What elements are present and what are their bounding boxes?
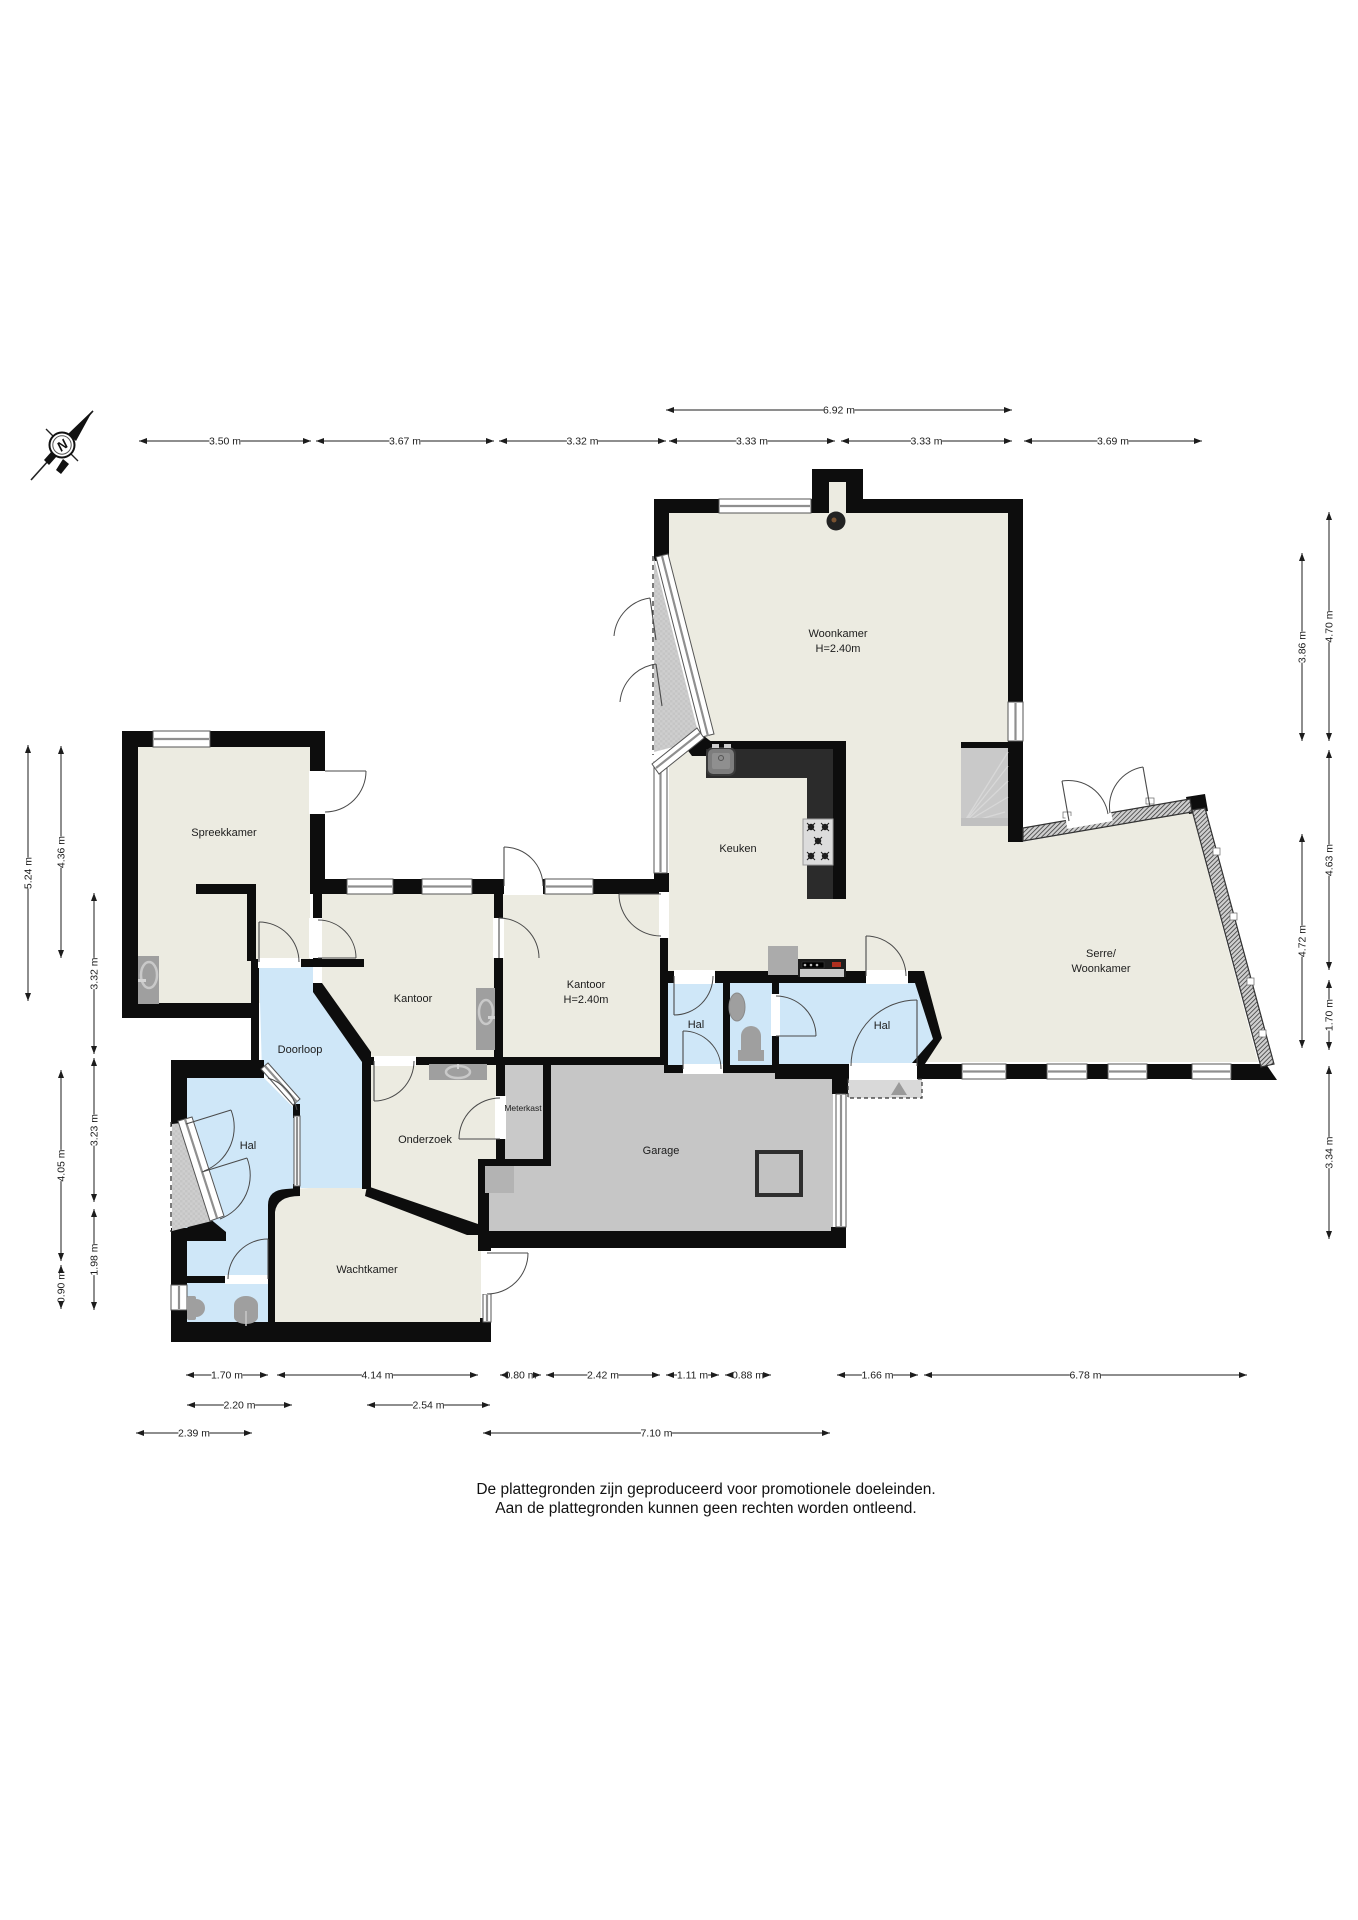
svg-text:4.14 m: 4.14 m bbox=[361, 1370, 393, 1382]
svg-text:Doorloop: Doorloop bbox=[278, 1044, 323, 1056]
svg-text:Keuken: Keuken bbox=[719, 843, 756, 855]
svg-text:4.63 m: 4.63 m bbox=[1324, 844, 1336, 876]
svg-text:3.23 m: 3.23 m bbox=[89, 1114, 101, 1146]
svg-text:0.80 m: 0.80 m bbox=[504, 1370, 536, 1382]
svg-text:7.10 m: 7.10 m bbox=[640, 1428, 672, 1440]
svg-text:Hal: Hal bbox=[874, 1020, 891, 1032]
svg-text:Woonkamer: Woonkamer bbox=[1071, 963, 1130, 975]
svg-text:5.24 m: 5.24 m bbox=[23, 857, 35, 889]
svg-text:3.86 m: 3.86 m bbox=[1297, 631, 1309, 663]
svg-text:H=2.40m: H=2.40m bbox=[816, 643, 861, 655]
svg-text:Hal: Hal bbox=[688, 1019, 705, 1031]
svg-text:Serre/: Serre/ bbox=[1086, 948, 1117, 960]
svg-text:4.72 m: 4.72 m bbox=[1297, 925, 1309, 957]
svg-text:6.92 m: 6.92 m bbox=[823, 405, 855, 417]
svg-text:2.20 m: 2.20 m bbox=[223, 1400, 255, 1412]
svg-text:1.70 m: 1.70 m bbox=[1324, 999, 1336, 1031]
svg-text:2.42 m: 2.42 m bbox=[587, 1370, 619, 1382]
svg-text:De plattegronden zijn geproduc: De plattegronden zijn geproduceerd voor … bbox=[476, 1481, 935, 1498]
svg-text:1.98 m: 1.98 m bbox=[89, 1243, 101, 1275]
svg-text:1.11 m: 1.11 m bbox=[677, 1370, 709, 1382]
svg-text:3.67 m: 3.67 m bbox=[389, 436, 421, 448]
svg-text:3.32 m: 3.32 m bbox=[89, 957, 101, 989]
svg-text:Wachtkamer: Wachtkamer bbox=[336, 1264, 398, 1276]
svg-text:Onderzoek: Onderzoek bbox=[398, 1134, 452, 1146]
svg-text:Kantoor: Kantoor bbox=[394, 993, 433, 1005]
svg-text:3.34 m: 3.34 m bbox=[1324, 1136, 1336, 1168]
svg-text:3.33 m: 3.33 m bbox=[910, 436, 942, 448]
svg-text:6.78 m: 6.78 m bbox=[1069, 1370, 1101, 1382]
svg-text:H=2.40m: H=2.40m bbox=[564, 994, 609, 1006]
svg-text:Meterkast: Meterkast bbox=[504, 1103, 542, 1113]
svg-text:4.05 m: 4.05 m bbox=[56, 1149, 68, 1181]
svg-text:Garage: Garage bbox=[643, 1145, 680, 1157]
svg-text:Kantoor: Kantoor bbox=[567, 979, 606, 991]
svg-text:0.90 m: 0.90 m bbox=[56, 1271, 68, 1303]
svg-text:3.32 m: 3.32 m bbox=[566, 436, 598, 448]
svg-text:3.50 m: 3.50 m bbox=[209, 436, 241, 448]
svg-text:Spreekkamer: Spreekkamer bbox=[191, 827, 257, 839]
svg-text:3.69 m: 3.69 m bbox=[1097, 436, 1129, 448]
svg-text:4.70 m: 4.70 m bbox=[1324, 610, 1336, 642]
svg-text:1.66 m: 1.66 m bbox=[861, 1370, 893, 1382]
svg-text:2.54 m: 2.54 m bbox=[412, 1400, 444, 1412]
svg-text:2.39 m: 2.39 m bbox=[178, 1428, 210, 1440]
svg-text:Woonkamer: Woonkamer bbox=[808, 628, 867, 640]
svg-text:Hal: Hal bbox=[240, 1140, 257, 1152]
svg-text:Aan de plattegronden kunnen ge: Aan de plattegronden kunnen geen rechten… bbox=[495, 1500, 916, 1517]
svg-text:4.36 m: 4.36 m bbox=[56, 836, 68, 868]
svg-text:3.33 m: 3.33 m bbox=[736, 436, 768, 448]
svg-text:1.70 m: 1.70 m bbox=[211, 1370, 243, 1382]
svg-text:0.88 m: 0.88 m bbox=[732, 1370, 764, 1382]
